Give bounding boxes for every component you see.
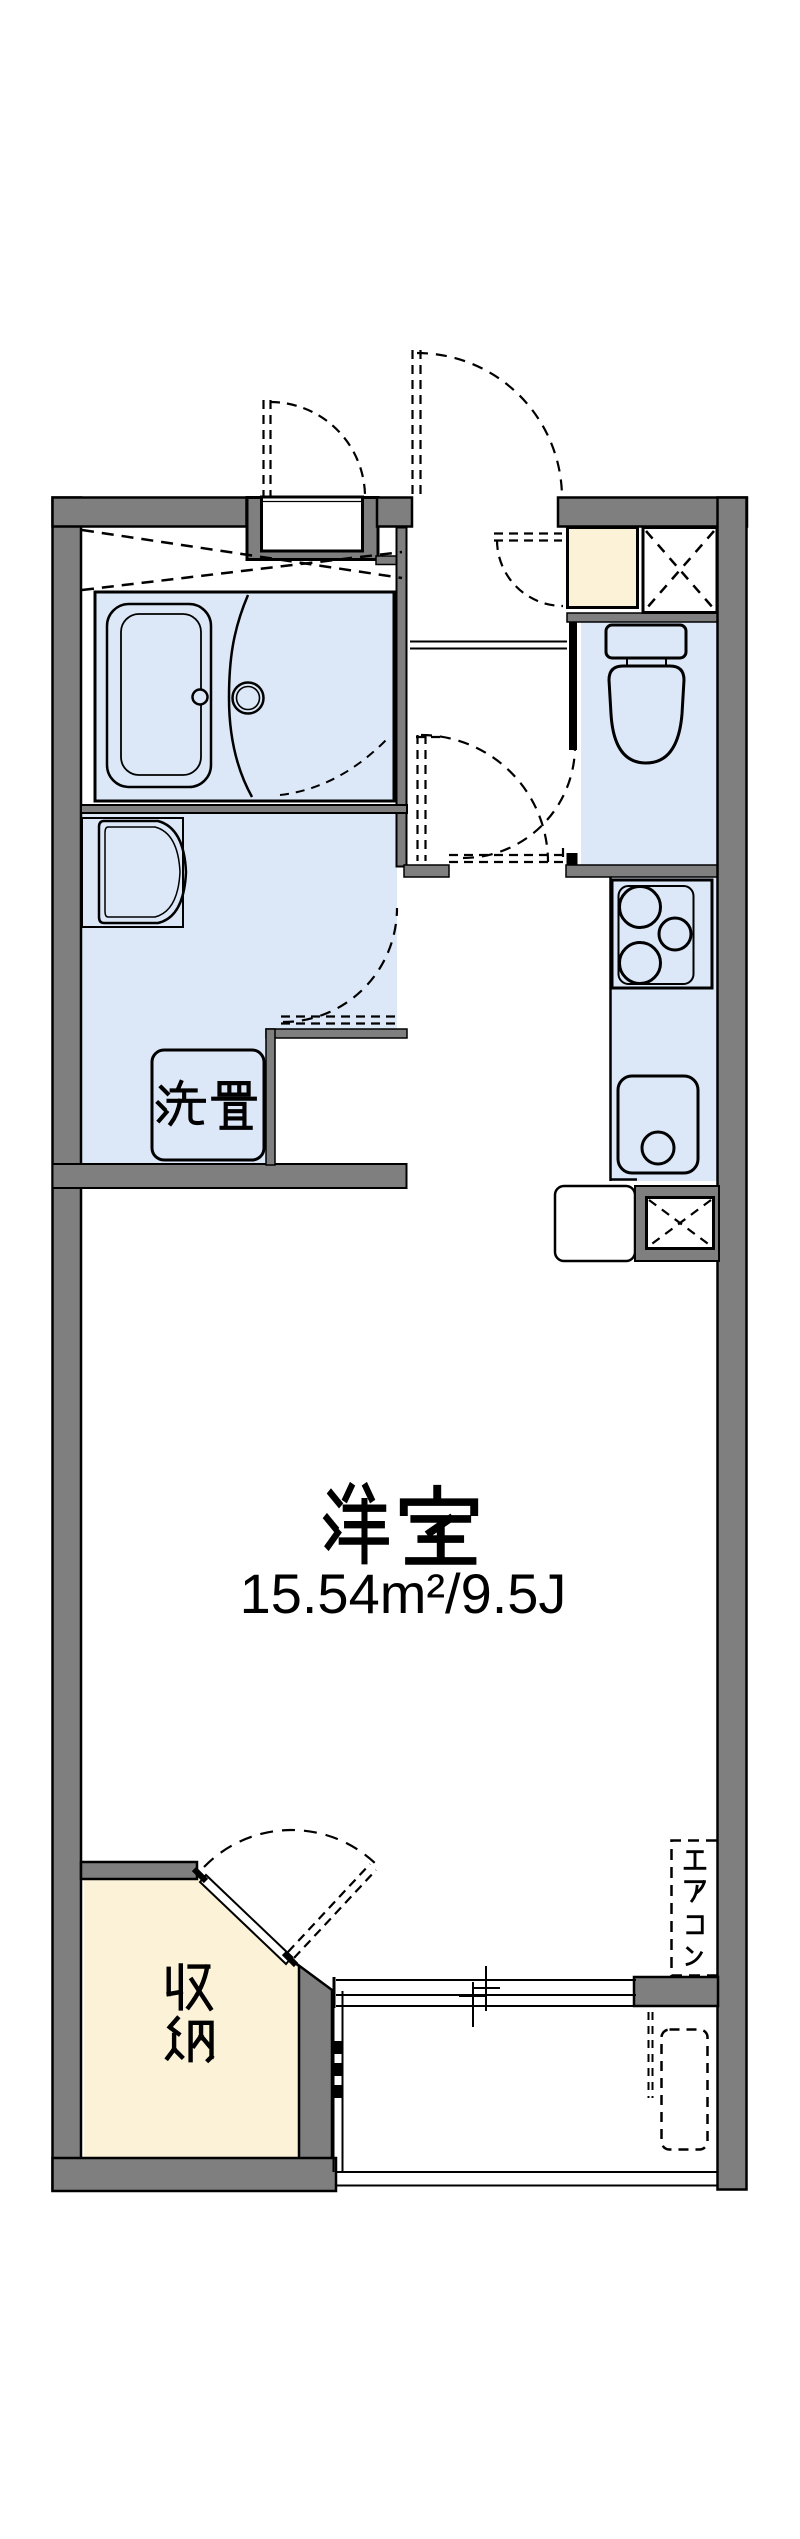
- svg-text:15.54m²/9.5J: 15.54m²/9.5J: [240, 1562, 567, 1625]
